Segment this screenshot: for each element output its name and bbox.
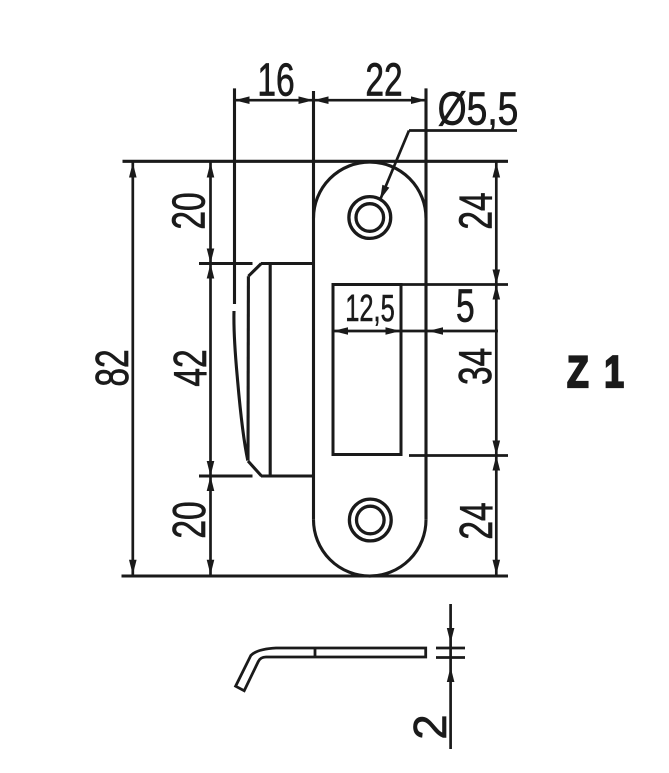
svg-text:16: 16 <box>257 53 294 106</box>
svg-text:5: 5 <box>456 279 475 332</box>
svg-text:22: 22 <box>365 53 402 106</box>
svg-text:34: 34 <box>449 348 502 385</box>
svg-text:Ø5,5: Ø5,5 <box>438 83 519 135</box>
svg-text:24: 24 <box>449 192 502 229</box>
svg-text:20: 20 <box>163 501 216 538</box>
svg-text:20: 20 <box>162 192 215 229</box>
svg-text:12,5: 12,5 <box>345 287 395 329</box>
svg-text:24: 24 <box>450 502 503 539</box>
svg-text:82: 82 <box>86 349 139 386</box>
svg-text:Z1: Z1 <box>567 347 624 397</box>
svg-text:2: 2 <box>404 714 457 739</box>
svg-text:42: 42 <box>164 349 217 386</box>
